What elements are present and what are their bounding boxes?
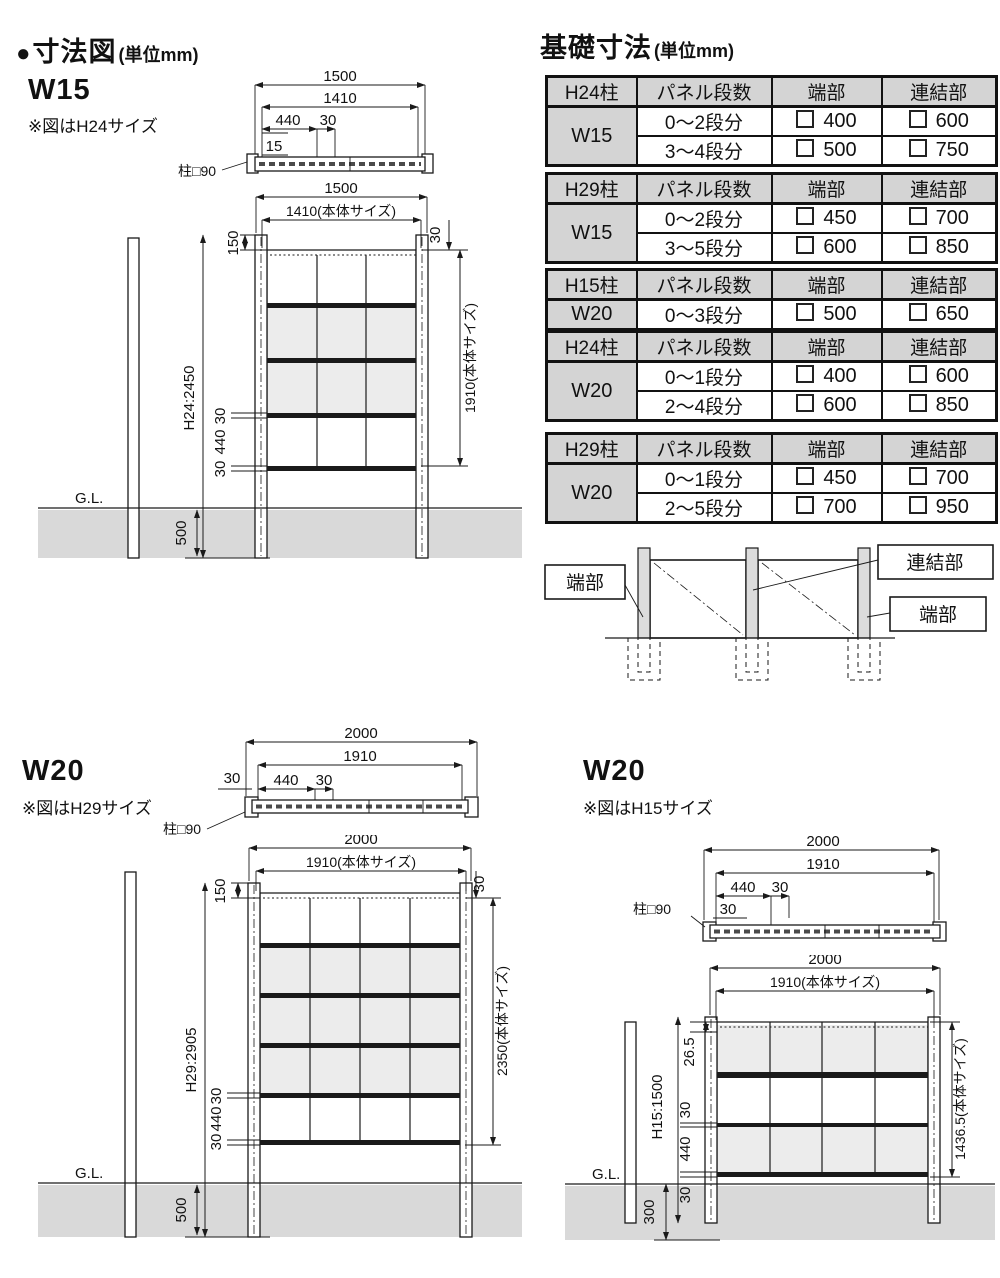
steps-cell: 3〜5段分 bbox=[637, 233, 772, 263]
dim-rail-b: 30 bbox=[208, 1134, 225, 1151]
steps-cell: 2〜5段分 bbox=[637, 493, 772, 523]
end-value-cell: 600 bbox=[772, 391, 882, 421]
joint-value-cell: 700 bbox=[882, 464, 997, 494]
square-dim-icon bbox=[796, 236, 814, 254]
panel-steps-header: パネル段数 bbox=[637, 270, 772, 300]
catalog-page: ●寸法図(単位mm) W15 ※図はH24サイズ 1500 1410 440 3… bbox=[0, 0, 1000, 1278]
post-size-note: 柱□90 bbox=[178, 163, 216, 179]
steps-cell: 3〜4段分 bbox=[637, 136, 772, 166]
panel-steps-header: パネル段数 bbox=[637, 332, 772, 362]
panel-steps-header: パネル段数 bbox=[637, 434, 772, 464]
end-header: 端部 bbox=[772, 174, 882, 204]
w20h15-label: W20 bbox=[583, 755, 646, 788]
panel-steps-header: パネル段数 bbox=[637, 174, 772, 204]
table-row: W15 0〜2段分 450 700 bbox=[547, 204, 997, 234]
w20h15-note: ※図はH15サイズ bbox=[583, 794, 713, 819]
square-dim-icon bbox=[796, 496, 814, 514]
dim-embed-depth: 500 bbox=[173, 520, 190, 545]
end-header: 端部 bbox=[772, 77, 882, 107]
square-dim-icon bbox=[909, 365, 927, 383]
square-dim-icon bbox=[909, 496, 927, 514]
steps-cell: 0〜2段分 bbox=[637, 204, 772, 234]
square-dim-icon bbox=[796, 467, 814, 485]
steps-cell: 0〜2段分 bbox=[637, 107, 772, 137]
dim-panel-height: 440 bbox=[212, 429, 229, 454]
steps-cell: 0〜3段分 bbox=[637, 300, 772, 330]
end-value-cell: 500 bbox=[772, 300, 882, 330]
dim-plan-overall: 1500 bbox=[323, 68, 356, 85]
dim-elev-body-width: 1910(本体サイズ) bbox=[306, 854, 416, 870]
square-dim-icon bbox=[909, 467, 927, 485]
width-cell: W15 bbox=[547, 107, 637, 166]
steps-cell: 2〜4段分 bbox=[637, 391, 772, 421]
dim-body-height: 2350(本体サイズ) bbox=[494, 966, 510, 1076]
square-dim-icon bbox=[796, 303, 814, 321]
w15-plan-view: 1500 1410 440 30 15 柱□90 bbox=[160, 60, 440, 185]
foundation-table-h29-w15: H29柱 パネル段数 端部 連結部 W15 0〜2段分 450 700 3〜5段… bbox=[545, 172, 998, 264]
dim-top-offset: 150 bbox=[212, 878, 229, 903]
square-dim-icon bbox=[909, 394, 927, 412]
table-row: W20 0〜1段分 400 600 bbox=[547, 362, 997, 392]
joint-post bbox=[746, 548, 758, 638]
dim-plan-offset: 15 bbox=[266, 138, 283, 155]
dim-post-height: H15:1500 bbox=[649, 1074, 666, 1139]
section-title-text: 寸法図 bbox=[33, 30, 117, 69]
square-dim-icon bbox=[796, 365, 814, 383]
dim-rail-a: 30 bbox=[677, 1102, 694, 1119]
ground-level-label: G.L. bbox=[75, 1165, 103, 1182]
table-row: W20 0〜1段分 450 700 bbox=[547, 464, 997, 494]
end-value-cell: 400 bbox=[772, 107, 882, 137]
end-value-cell: 700 bbox=[772, 493, 882, 523]
dim-elev-overall-width: 2000 bbox=[808, 955, 841, 968]
square-dim-icon bbox=[909, 207, 927, 225]
screen-bar-top-view bbox=[245, 797, 478, 817]
joint-label: 連結部 bbox=[906, 552, 963, 574]
w20h29-elevation: 2000 1910(本体サイズ) 150 H29:2905 30 440 30 … bbox=[35, 835, 525, 1250]
w20h29-plan-view: 2000 1910 440 30 30 柱□90 bbox=[160, 712, 500, 842]
dim-top-offset: 26.5 bbox=[681, 1037, 698, 1066]
foundation-title-unit: (単位mm) bbox=[654, 37, 734, 63]
leader-line bbox=[222, 162, 247, 170]
fence-sketch bbox=[605, 548, 895, 680]
end-value-cell: 600 bbox=[772, 233, 882, 263]
post-header: H29柱 bbox=[547, 434, 637, 464]
square-dim-icon bbox=[909, 236, 927, 254]
joint-value-cell: 600 bbox=[882, 107, 997, 137]
w15-elevation: 1500 1410(本体サイズ) 150 H24:2450 30 440 30 … bbox=[35, 183, 525, 578]
end-value-cell: 500 bbox=[772, 136, 882, 166]
dim-plan-overall: 2000 bbox=[806, 833, 839, 850]
dim-elev-body-width: 1910(本体サイズ) bbox=[770, 974, 880, 990]
dim-embed-depth: 500 bbox=[173, 1197, 190, 1222]
end-value-cell: 400 bbox=[772, 362, 882, 392]
dim-post-height: H29:2905 bbox=[183, 1027, 200, 1092]
end-value-cell: 450 bbox=[772, 464, 882, 494]
joint-value-cell: 850 bbox=[882, 233, 997, 263]
ground-fill bbox=[38, 510, 522, 558]
square-dim-icon bbox=[796, 207, 814, 225]
dim-embed-depth: 300 bbox=[641, 1199, 658, 1224]
dim-side-offset: 30 bbox=[471, 876, 488, 893]
foundation-table-h24-w15: H24柱 パネル段数 端部 連結部 W15 0〜2段分 400 600 3〜4段… bbox=[545, 75, 998, 167]
width-cell: W20 bbox=[547, 362, 637, 421]
joint-header: 連結部 bbox=[882, 174, 997, 204]
table-row: W15 0〜2段分 400 600 bbox=[547, 107, 997, 137]
table-row: W20 0〜3段分 500 650 bbox=[547, 300, 997, 330]
joint-header: 連結部 bbox=[882, 434, 997, 464]
dim-plan-body: 1410 bbox=[323, 90, 356, 107]
joint-value-cell: 850 bbox=[882, 391, 997, 421]
ground-fill bbox=[38, 1185, 522, 1237]
joint-value-cell: 650 bbox=[882, 300, 997, 330]
w15-note: ※図はH24サイズ bbox=[28, 112, 158, 137]
dim-panel-height: 440 bbox=[208, 1106, 225, 1131]
dim-plan-body: 1910 bbox=[343, 748, 376, 765]
dim-side-offset: 30 bbox=[427, 227, 444, 244]
foundation-table-h29-w20: H29柱 パネル段数 端部 連結部 W20 0〜1段分 450 700 2〜5段… bbox=[545, 432, 998, 524]
w20h29-note: ※図はH29サイズ bbox=[22, 794, 152, 819]
dim-plan-bracket: 30 bbox=[316, 772, 333, 789]
dim-plan-body: 1910 bbox=[806, 856, 839, 873]
w20h15-elevation: 2000 1910(本体サイズ) 26.5 H15:1500 30 440 30… bbox=[560, 955, 1000, 1245]
square-dim-icon bbox=[909, 303, 927, 321]
square-dim-icon bbox=[909, 110, 927, 128]
dim-plan-panel: 440 bbox=[275, 112, 300, 129]
joint-value-cell: 750 bbox=[882, 136, 997, 166]
steps-cell: 0〜1段分 bbox=[637, 464, 772, 494]
dim-panel-height: 440 bbox=[677, 1136, 694, 1161]
dim-plan-overall: 2000 bbox=[344, 725, 377, 742]
dim-post-height: H24:2450 bbox=[181, 365, 198, 430]
dim-rail-a: 30 bbox=[212, 408, 229, 425]
panel-steps-header: パネル段数 bbox=[637, 77, 772, 107]
dim-plan-offset: 30 bbox=[720, 901, 737, 918]
dim-elev-body-width: 1410(本体サイズ) bbox=[286, 203, 396, 219]
end-label-right: 端部 bbox=[919, 604, 957, 626]
width-cell: W20 bbox=[547, 300, 637, 330]
joint-header: 連結部 bbox=[882, 332, 997, 362]
post-header: H29柱 bbox=[547, 174, 637, 204]
foundation-title-text: 基礎寸法 bbox=[540, 26, 652, 65]
end-value-cell: 450 bbox=[772, 204, 882, 234]
free-post bbox=[625, 1022, 636, 1223]
foundation-table-h24-w20: H24柱 パネル段数 端部 連結部 W20 0〜1段分 400 600 2〜4段… bbox=[545, 330, 998, 422]
joint-value-cell: 700 bbox=[882, 204, 997, 234]
dim-rail-b: 30 bbox=[212, 461, 229, 478]
width-cell: W20 bbox=[547, 464, 637, 523]
dim-body-height: 1436.5(本体サイズ) bbox=[952, 1038, 968, 1160]
post-header: H15柱 bbox=[547, 270, 637, 300]
screen-bar-top-view bbox=[247, 154, 433, 173]
square-dim-icon bbox=[796, 110, 814, 128]
end-header: 端部 bbox=[772, 434, 882, 464]
joint-value-cell: 600 bbox=[882, 362, 997, 392]
bullet-icon: ● bbox=[16, 42, 31, 66]
dim-plan-bracket: 30 bbox=[772, 879, 789, 896]
w15-label: W15 bbox=[28, 74, 91, 107]
leader-line bbox=[207, 812, 245, 829]
joint-header: 連結部 bbox=[882, 270, 997, 300]
free-post bbox=[128, 238, 139, 558]
dim-plan-bracket: 30 bbox=[320, 112, 337, 129]
width-cell: W15 bbox=[547, 204, 637, 263]
dim-rail-b: 30 bbox=[677, 1187, 694, 1204]
w20h29-label: W20 bbox=[22, 755, 85, 788]
dim-plan-panel: 440 bbox=[273, 772, 298, 789]
square-dim-icon bbox=[796, 394, 814, 412]
post-header: H24柱 bbox=[547, 77, 637, 107]
dim-top-offset: 150 bbox=[225, 230, 242, 255]
post-header: H24柱 bbox=[547, 332, 637, 362]
end-header: 端部 bbox=[772, 270, 882, 300]
square-dim-icon bbox=[796, 139, 814, 157]
fence-structure bbox=[125, 872, 472, 1237]
end-joint-diagram: 端部 連結部 端部 bbox=[540, 525, 1000, 700]
foundation-table-h15-w20: H15柱 パネル段数 端部 連結部 W20 0〜3段分 500 650 bbox=[545, 268, 998, 331]
post-size-note: 柱□90 bbox=[633, 901, 671, 917]
foundation-section-title: 基礎寸法(単位mm) bbox=[540, 26, 734, 65]
end-header: 端部 bbox=[772, 332, 882, 362]
free-post bbox=[125, 872, 136, 1237]
ground-level-label: G.L. bbox=[592, 1166, 620, 1183]
end-post-right bbox=[858, 548, 870, 638]
fence-structure bbox=[128, 235, 428, 558]
dim-body-height: 1910(本体サイズ) bbox=[462, 303, 478, 413]
ground-level-label: G.L. bbox=[75, 490, 103, 507]
screen-bar-top-view bbox=[703, 922, 946, 941]
joint-value-cell: 950 bbox=[882, 493, 997, 523]
dim-elev-overall-width: 2000 bbox=[344, 835, 377, 848]
dim-rail-a: 30 bbox=[208, 1088, 225, 1105]
joint-header: 連結部 bbox=[882, 77, 997, 107]
end-label-left: 端部 bbox=[566, 572, 604, 594]
dim-elev-overall-width: 1500 bbox=[324, 183, 357, 197]
end-post-left bbox=[638, 548, 650, 638]
square-dim-icon bbox=[909, 139, 927, 157]
dim-plan-offset: 30 bbox=[224, 770, 241, 787]
w20h15-plan-view: 2000 1910 440 30 30 柱□90 bbox=[595, 828, 995, 953]
dim-plan-panel: 440 bbox=[730, 879, 755, 896]
steps-cell: 0〜1段分 bbox=[637, 362, 772, 392]
